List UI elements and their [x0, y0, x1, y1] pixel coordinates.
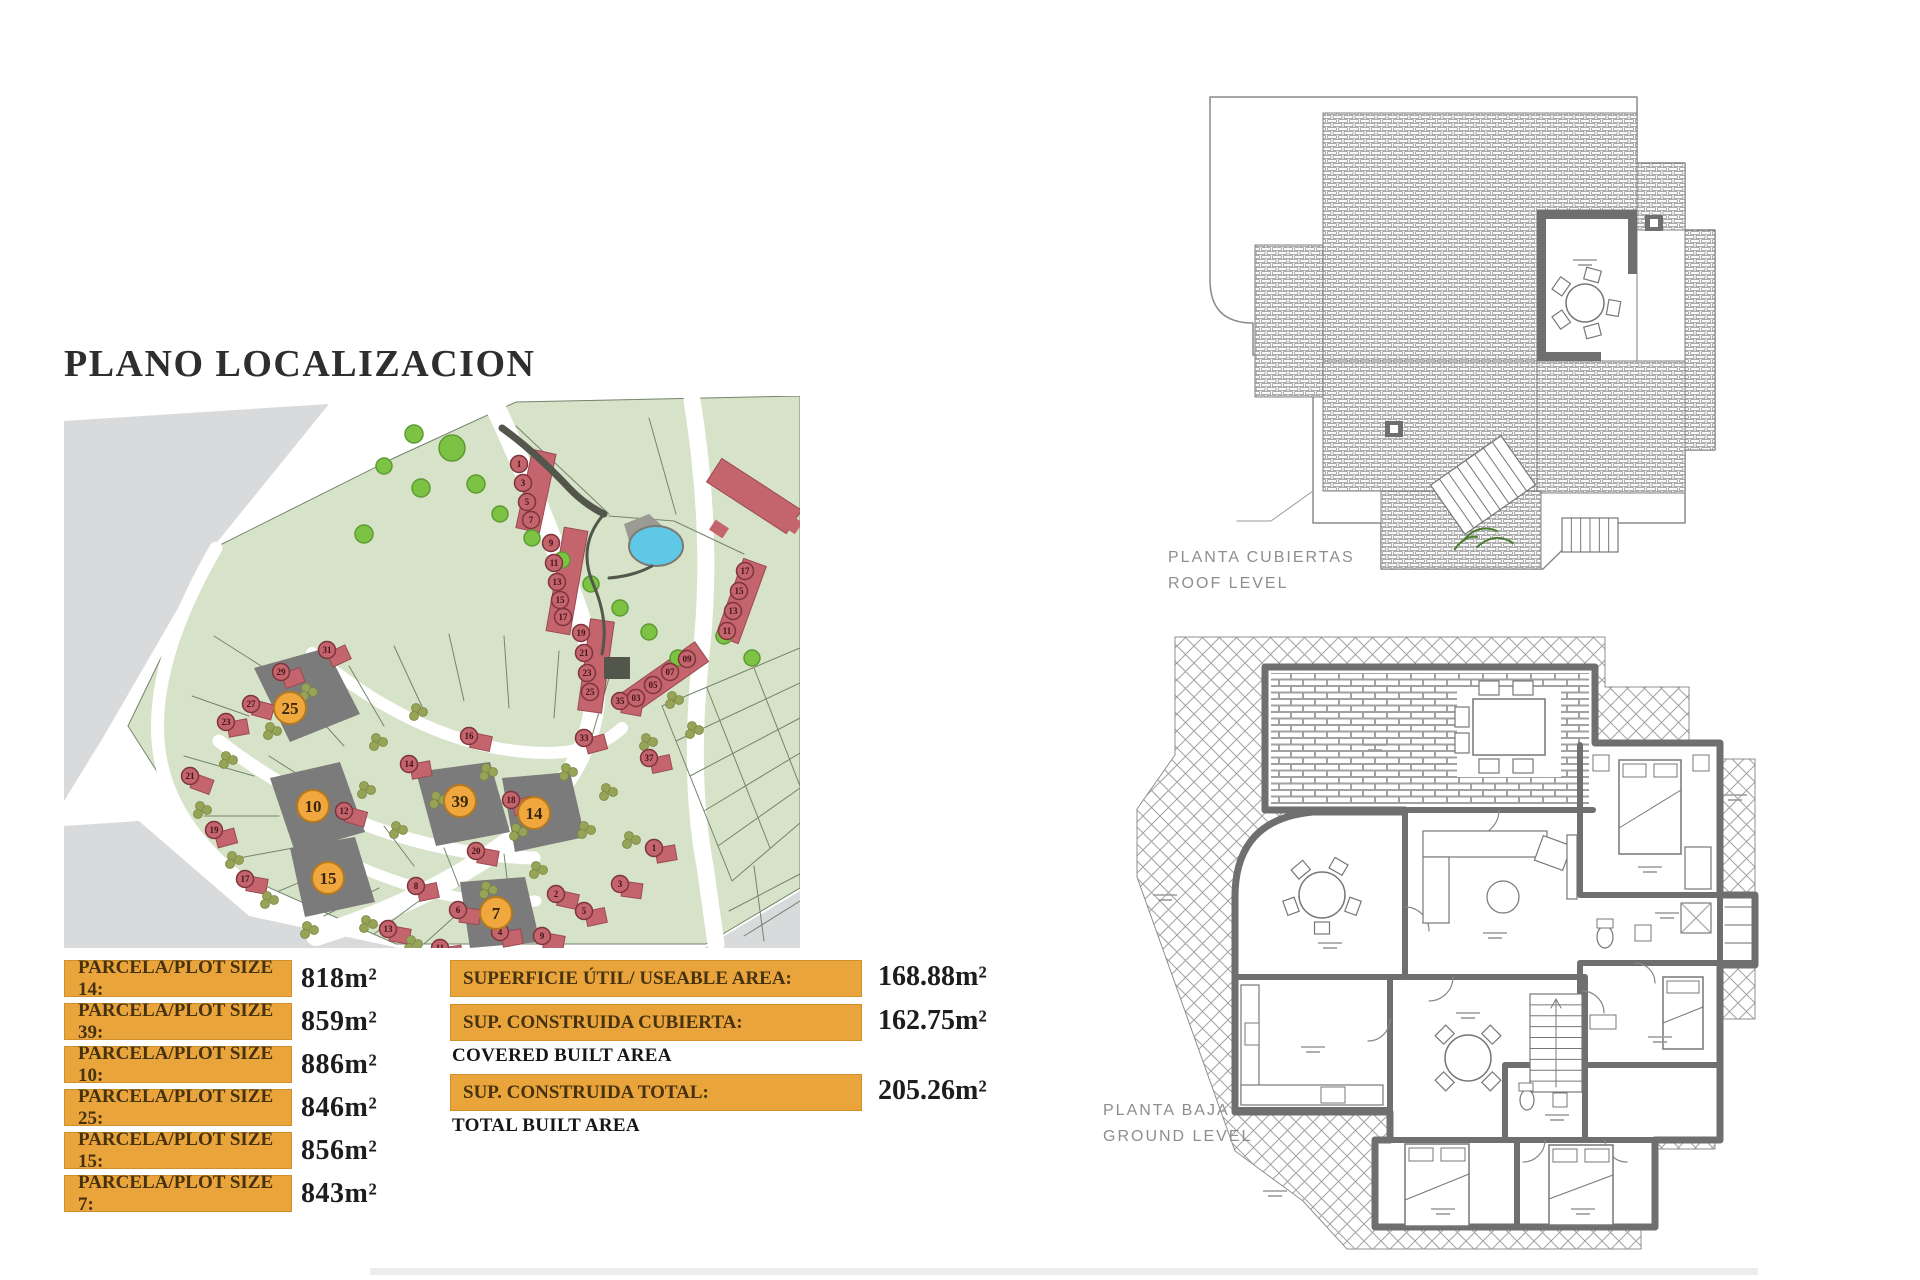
plot-number: 13: [384, 924, 394, 934]
plot-number: 21: [580, 648, 590, 658]
dining-table: [1299, 872, 1345, 918]
plot-number: 29: [277, 667, 287, 677]
sink: [1635, 925, 1651, 941]
built-area-table: SUPERFICIE ÚTIL/ USEABLE AREA:168.88m²SU…: [450, 960, 1090, 1144]
shrub: [530, 870, 539, 879]
roof-plan: [1085, 55, 1765, 595]
plot-number: 1: [652, 843, 657, 853]
shrub: [229, 756, 238, 765]
shrub: [273, 727, 282, 736]
shrub: [369, 920, 378, 929]
page-title: PLANO LOCALIZACION: [64, 342, 535, 386]
plot-number: 6: [456, 905, 461, 915]
chimney-core: [1650, 219, 1658, 227]
sofa: [1423, 857, 1449, 923]
shrub: [686, 730, 695, 739]
plot-number: 14: [405, 759, 415, 769]
plot-number: 07: [666, 667, 676, 677]
built-area-label: SUP. CONSTRUIDA TOTAL:: [450, 1074, 862, 1111]
tree: [612, 600, 628, 616]
plot-number: 20: [472, 846, 482, 856]
tree: [376, 458, 392, 474]
shrub: [410, 712, 419, 721]
shrub: [399, 826, 408, 835]
pillow: [1409, 1148, 1433, 1161]
shrub: [623, 840, 632, 849]
tree: [492, 506, 508, 522]
shrub: [632, 836, 641, 845]
tree: [355, 525, 373, 543]
plot-size-row: PARCELA/PLOT SIZE 7:843m²: [64, 1175, 444, 1212]
highlight-plot-number: 14: [526, 804, 544, 823]
plot-number: 35: [616, 696, 626, 706]
chimney-core: [1390, 425, 1398, 433]
plot-size-label: PARCELA/PLOT SIZE 25:: [64, 1089, 292, 1126]
shrub: [587, 826, 596, 835]
tv-unit: [1567, 835, 1577, 899]
tree: [467, 475, 485, 493]
plot-number: 2: [554, 889, 559, 899]
tree: [405, 425, 423, 443]
shrub: [489, 886, 498, 895]
plot-number: 15: [556, 595, 566, 605]
pillow: [1441, 1148, 1465, 1161]
shrub: [480, 772, 489, 781]
shrub: [360, 924, 369, 933]
shrub: [390, 830, 399, 839]
shrub: [220, 760, 229, 769]
shrub: [430, 800, 439, 809]
chair: [1513, 681, 1533, 695]
ground-plan-label-es: PLANTA BAJA: [1103, 1098, 1252, 1124]
tree: [641, 624, 657, 640]
plot-size-label: PARCELA/PLOT SIZE 15:: [64, 1132, 292, 1169]
plot-number: 09: [683, 654, 693, 664]
plot-number: 16: [465, 731, 475, 741]
roof-plan-label-es: PLANTA CUBIERTAS: [1168, 545, 1355, 571]
plot-size-table: PARCELA/PLOT SIZE 14:818m²PARCELA/PLOT S…: [64, 960, 444, 1218]
shrub: [666, 700, 675, 709]
ground-plan-svg: [1075, 595, 1775, 1255]
plot-number: 03: [632, 693, 642, 703]
ground-plan-label-en: GROUND LEVEL: [1103, 1124, 1252, 1150]
shrub: [226, 860, 235, 869]
plot-size-label: PARCELA/PLOT SIZE 14:: [64, 960, 292, 997]
plot-size-row: PARCELA/PLOT SIZE 39:859m²: [64, 1003, 444, 1040]
highlight-plot-number: 25: [282, 699, 299, 718]
built-area-sublabel: COVERED BUILT AREA: [452, 1045, 1090, 1067]
plot-number: 33: [580, 733, 590, 743]
wall: [1537, 210, 1637, 219]
shrub: [235, 856, 244, 865]
plot-number: 13: [553, 577, 563, 587]
pillow: [1585, 1149, 1609, 1162]
shrub: [414, 940, 423, 949]
plot-number: 7: [529, 515, 534, 525]
hall-table: [1445, 1035, 1491, 1081]
ground-plan-label: PLANTA BAJA GROUND LEVEL: [1103, 1098, 1252, 1149]
tree: [439, 435, 465, 461]
shrub: [270, 896, 279, 905]
built-area-sublabel: TOTAL BUILT AREA: [452, 1115, 1090, 1137]
pillow: [1623, 764, 1646, 777]
plot-number: 11: [436, 943, 445, 948]
built-area-label: SUPERFICIE ÚTIL/ USEABLE AREA:: [450, 960, 862, 997]
plot-number: 11: [550, 558, 559, 568]
sink: [1553, 1093, 1567, 1107]
plot-size-row: PARCELA/PLOT SIZE 15:856m²: [64, 1132, 444, 1169]
terrace-table: [1566, 284, 1604, 322]
wall: [1537, 210, 1546, 361]
tree: [524, 530, 540, 546]
plot-number: 23: [222, 717, 232, 727]
plot-size-value: 886m²: [301, 1049, 377, 1081]
built-area-row: SUPERFICIE ÚTIL/ USEABLE AREA:168.88m²: [450, 960, 1090, 997]
toilet-tank: [1519, 1083, 1533, 1091]
roof-plan-label: PLANTA CUBIERTAS ROOF LEVEL: [1168, 545, 1355, 596]
shrub: [649, 738, 658, 747]
built-area-value: 162.75m²: [878, 1005, 987, 1037]
shrub: [480, 890, 489, 899]
shrub: [203, 806, 212, 815]
plot-number: 18: [507, 795, 517, 805]
nightstand: [1693, 755, 1709, 771]
built-area-label: SUP. CONSTRUIDA CUBIERTA:: [450, 1004, 862, 1041]
built-area-row: SUP. CONSTRUIDA CUBIERTA:162.75m²COVERED…: [450, 1004, 1090, 1067]
shrub: [519, 828, 528, 837]
pillow: [1654, 764, 1677, 777]
plot-size-row: PARCELA/PLOT SIZE 25:846m²: [64, 1089, 444, 1126]
shrub: [675, 696, 684, 705]
shrub: [539, 866, 548, 875]
shrub: [310, 926, 319, 935]
plot-number: 5: [525, 497, 530, 507]
shrub: [489, 768, 498, 777]
roof-plan-label-en: ROOF LEVEL: [1168, 571, 1355, 597]
plot-size-value: 856m²: [301, 1135, 377, 1167]
kitchen-counter: [1241, 1085, 1383, 1105]
plot-size-label: PARCELA/PLOT SIZE 39:: [64, 1003, 292, 1040]
plot-size-value: 859m²: [301, 1006, 377, 1038]
shrub: [510, 832, 519, 841]
page: PLANO LOCALIZACION 312927232119171311953…: [0, 0, 1920, 1280]
shrub: [358, 790, 367, 799]
plot-number: 9: [549, 538, 554, 548]
plot-number: 17: [559, 612, 569, 622]
plot-number: 9: [540, 931, 545, 941]
plot-number: 37: [645, 753, 655, 763]
stairs: [1562, 518, 1618, 552]
shrub: [370, 742, 379, 751]
nightstand: [1593, 755, 1609, 771]
roof-tiles: [1685, 230, 1715, 450]
highlight-plot-number: 39: [452, 792, 469, 811]
tree: [412, 479, 430, 497]
shrub: [569, 768, 578, 777]
plot-size-value: 846m²: [301, 1092, 377, 1124]
shrub: [578, 830, 587, 839]
plot-number: 21: [186, 771, 196, 781]
shrub: [264, 731, 273, 740]
plot-number: 1: [517, 459, 522, 469]
toilet: [1597, 926, 1613, 948]
plot-number: 8: [414, 881, 419, 891]
plot-number: 12: [340, 806, 350, 816]
shrub: [600, 792, 609, 801]
shrub: [379, 738, 388, 747]
roof-tiles: [1537, 361, 1685, 493]
highlight-plot-number: 10: [305, 797, 322, 816]
stove: [1321, 1087, 1345, 1103]
chair: [1455, 733, 1469, 753]
plot-size-value: 818m²: [301, 963, 377, 995]
shrub: [695, 726, 704, 735]
sofa: [1423, 831, 1547, 857]
plot-size-label: PARCELA/PLOT SIZE 7:: [64, 1175, 292, 1212]
shrub: [609, 788, 618, 797]
bottom-divider: [370, 1268, 1758, 1275]
plot-number: 23: [583, 668, 593, 678]
wall: [1628, 210, 1637, 274]
highlight-plot-number: 7: [492, 904, 501, 923]
plot-number: 17: [741, 566, 751, 576]
plot-number: 19: [577, 628, 587, 638]
leader-line: [1237, 491, 1313, 521]
shrub: [367, 786, 376, 795]
chair: [1606, 300, 1620, 317]
plot-number: 19: [210, 825, 220, 835]
shrub: [309, 688, 318, 697]
park-structure: [604, 657, 630, 679]
pool: [629, 526, 683, 566]
plot-number: 25: [586, 687, 596, 697]
shrub: [261, 900, 270, 909]
plot-size-label: PARCELA/PLOT SIZE 10:: [64, 1046, 292, 1083]
tree: [744, 650, 760, 666]
chair: [1479, 681, 1499, 695]
porch-table: [1473, 699, 1545, 755]
chair: [1513, 759, 1533, 773]
shrub: [194, 810, 203, 819]
plot-number: 11: [723, 626, 732, 636]
shrub: [560, 772, 569, 781]
roof-plan-svg: [1085, 55, 1765, 595]
shrub: [419, 708, 428, 717]
coffee-table: [1487, 881, 1519, 913]
plot-number: 31: [323, 645, 333, 655]
plot-number: 5: [582, 906, 587, 916]
plot-size-row: PARCELA/PLOT SIZE 10:886m²: [64, 1046, 444, 1083]
roof-tiles: [1255, 245, 1323, 397]
chair: [1315, 922, 1330, 934]
plot-number: 17: [241, 874, 251, 884]
highlight-plot-number: 15: [320, 869, 337, 888]
location-map-svg: 3129272321191713119531121416182086423335…: [64, 396, 800, 948]
wall: [1537, 352, 1601, 361]
pillow: [1553, 1149, 1577, 1162]
shrub: [301, 930, 310, 939]
plot-size-row: PARCELA/PLOT SIZE 14:818m²: [64, 960, 444, 997]
plot-number: 3: [521, 478, 526, 488]
wardrobe: [1685, 847, 1711, 889]
desk: [1590, 1015, 1616, 1029]
kitchen-sink: [1245, 1023, 1259, 1045]
location-map: 3129272321191713119531121416182086423335…: [64, 396, 800, 948]
built-area-value: 168.88m²: [878, 961, 987, 993]
built-area-value: 205.26m²: [878, 1075, 987, 1107]
built-area-row: SUP. CONSTRUIDA TOTAL:205.26m²TOTAL BUIL…: [450, 1074, 1090, 1137]
plot-number: 13: [729, 606, 739, 616]
toilet-tank: [1597, 919, 1613, 928]
chair: [1479, 759, 1499, 773]
toilet: [1520, 1090, 1534, 1110]
ground-plan: [1075, 595, 1775, 1255]
plot-number: 3: [618, 879, 623, 889]
chair: [1455, 707, 1469, 727]
pillow: [1667, 981, 1699, 993]
plot-size-value: 843m²: [301, 1178, 377, 1210]
plot-number: 15: [735, 586, 745, 596]
plot-number: 05: [649, 680, 659, 690]
plot-number: 27: [247, 699, 257, 709]
